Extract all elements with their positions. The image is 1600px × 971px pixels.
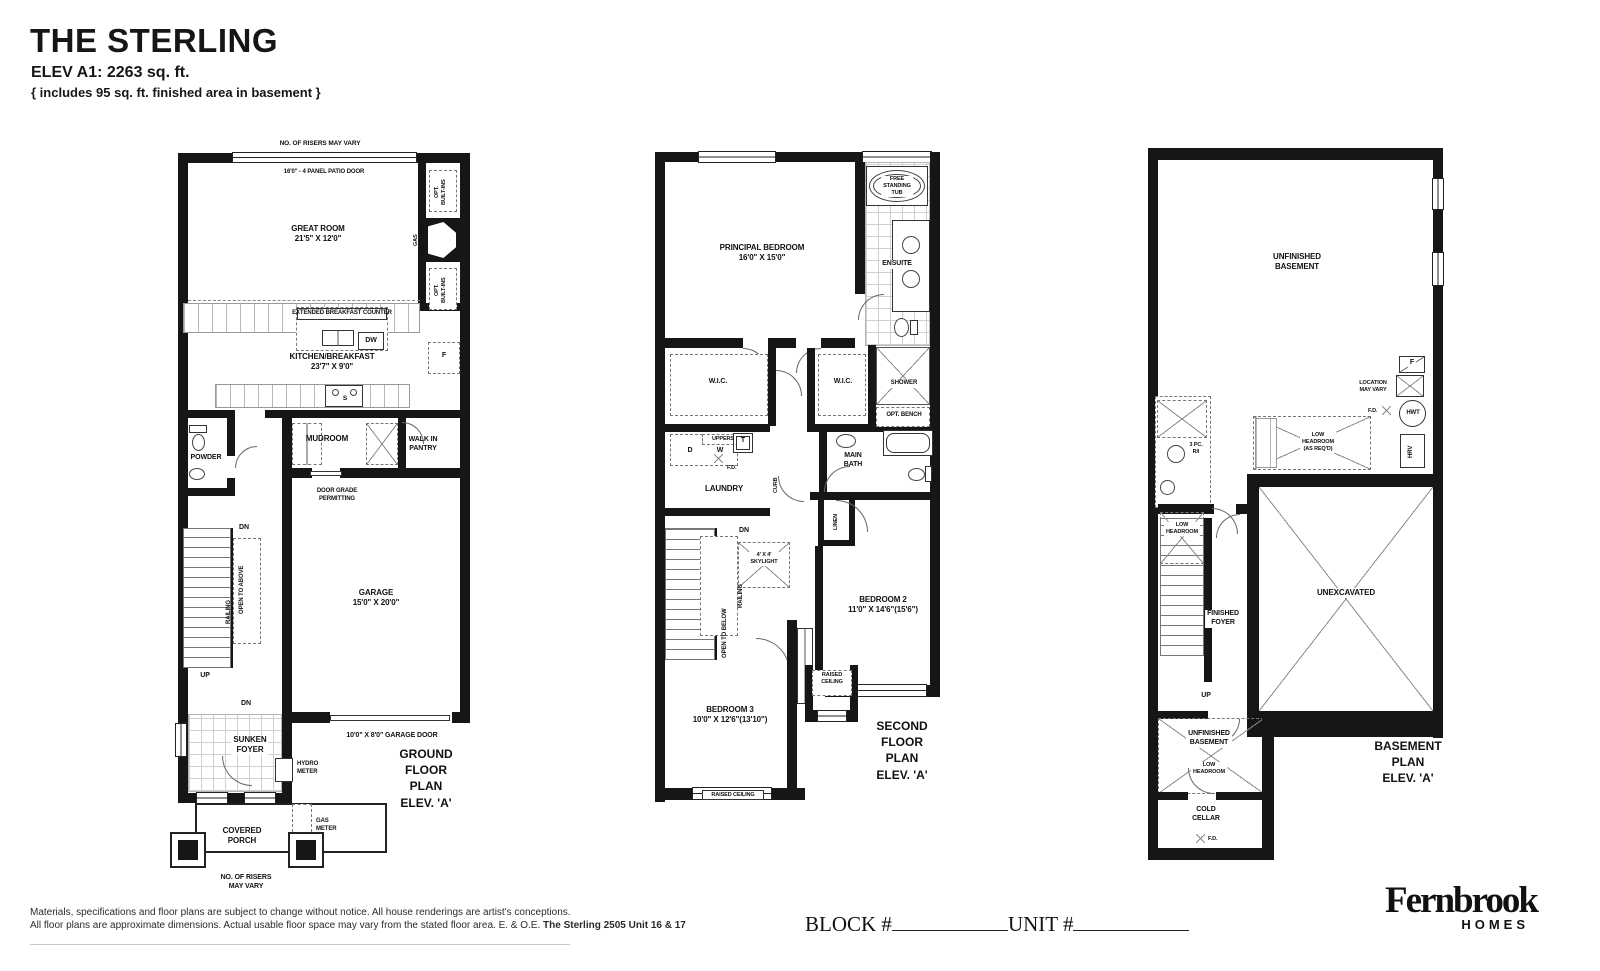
sink-bowl bbox=[902, 270, 920, 288]
room-divider-dashed bbox=[188, 300, 420, 301]
floor-drain bbox=[1382, 406, 1391, 415]
low-headroom-label: LOW HEADROOM bbox=[1164, 522, 1200, 536]
second-floor-plan: PRINCIPAL BEDROOM 16'0" X 15'0" FREE STA… bbox=[640, 140, 970, 815]
powder-room-label: POWDER bbox=[191, 454, 222, 463]
ensuite-label: ENSUITE bbox=[880, 260, 914, 269]
dn-label: DN bbox=[739, 527, 749, 536]
disclaimer-line1: Materials, specifications and floor plan… bbox=[30, 906, 686, 919]
porch-post-core bbox=[296, 840, 316, 860]
kitchen-counter bbox=[215, 384, 410, 408]
floor-drain-label: F.D. bbox=[1368, 408, 1377, 415]
bedroom3-label: BEDROOM 3 10'0" X 12'6"(13'10") bbox=[691, 705, 770, 725]
sunken-foyer-label: SUNKEN FOYER bbox=[231, 735, 268, 755]
wall bbox=[1262, 718, 1274, 860]
garage-door-label: 10'0" X 8'0" GARAGE DOOR bbox=[346, 732, 437, 741]
patio-door-window bbox=[232, 152, 417, 163]
wall bbox=[290, 468, 312, 478]
patio-door-label: 16'0" - 4 PANEL PATIO DOOR bbox=[284, 169, 365, 177]
door-arc bbox=[776, 370, 802, 396]
wall bbox=[178, 410, 235, 418]
wall bbox=[665, 508, 770, 516]
opt-bench-label: OPT. BENCH bbox=[884, 412, 923, 420]
wall bbox=[417, 153, 470, 163]
block-number-blank bbox=[892, 915, 1008, 931]
floor-drain bbox=[1196, 834, 1205, 843]
principal-bedroom-label: PRINCIPAL BEDROOM 16'0" X 15'0" bbox=[718, 243, 807, 263]
sink-bowl bbox=[836, 434, 856, 448]
wall bbox=[855, 162, 865, 294]
sink-bowl bbox=[350, 389, 357, 396]
wall bbox=[227, 418, 235, 456]
door-arc bbox=[756, 638, 790, 672]
wall bbox=[178, 488, 235, 496]
wall bbox=[1148, 848, 1274, 860]
shower-roughin bbox=[1157, 400, 1207, 438]
sink-bowl bbox=[332, 389, 339, 396]
unexcavated-label: UNEXCAVATED bbox=[1315, 588, 1377, 598]
dn-label: DN bbox=[241, 700, 251, 709]
sink-bowl bbox=[189, 468, 205, 480]
wall bbox=[1148, 148, 1443, 160]
wall bbox=[665, 424, 770, 432]
door-arc bbox=[824, 466, 850, 492]
low-headroom-label: LOW HEADROOM bbox=[1191, 762, 1227, 776]
wall bbox=[282, 418, 292, 712]
up-label: UP bbox=[200, 672, 210, 681]
garage-door bbox=[330, 715, 450, 721]
toilet-bowl bbox=[894, 318, 909, 337]
wall bbox=[807, 348, 815, 426]
cooktop bbox=[322, 330, 354, 346]
divider bbox=[30, 944, 570, 945]
second-plan-title: SECOND FLOOR PLAN ELEV. 'A' bbox=[868, 718, 936, 783]
raised-ceiling-label: RAISED CEILING bbox=[711, 792, 754, 799]
ground-plan-title: GROUND FLOOR PLAN ELEV. 'A' bbox=[394, 746, 458, 811]
wall bbox=[655, 152, 665, 802]
furnace-label: F bbox=[1408, 359, 1416, 368]
wall bbox=[847, 710, 858, 722]
door-arc bbox=[836, 500, 868, 532]
floor-drain-label: F.D. bbox=[727, 465, 736, 472]
wic-label: W.I.C. bbox=[832, 378, 854, 387]
opt-builtins-label: OPT. BUILT-INS bbox=[434, 272, 448, 308]
basement-plan: UNFINISHED BASEMENT F LOCATION MAY VARY … bbox=[1120, 140, 1460, 870]
uppers-label: UPPERS bbox=[712, 436, 734, 443]
door-arc bbox=[858, 294, 884, 320]
toilet-bowl bbox=[192, 434, 205, 451]
wall bbox=[818, 498, 824, 546]
floor-drain-label: F.D. bbox=[1208, 836, 1217, 843]
linen-label: LINEN bbox=[833, 506, 840, 538]
unfinished-basement-label: UNFINISHED BASEMENT bbox=[1186, 730, 1232, 748]
model-unit-ref: The Sterling 2505 Unit 16 & 17 bbox=[543, 920, 686, 931]
wall bbox=[178, 153, 188, 803]
wall bbox=[818, 540, 855, 546]
disclaimer-line2: All floor plans are approximate dimensio… bbox=[30, 919, 686, 932]
wic-label: W.I.C. bbox=[707, 378, 729, 387]
hydro-meter bbox=[275, 758, 293, 782]
mudroom-label: MUDROOM bbox=[306, 434, 348, 444]
wall bbox=[768, 338, 796, 348]
hydro-meter-label: HYDRO METER bbox=[297, 761, 318, 776]
risers-note-top: NO. OF RISERS MAY VARY bbox=[280, 140, 361, 148]
finished-foyer-label: FINISHED FOYER bbox=[1205, 610, 1241, 628]
door-arc bbox=[778, 476, 804, 502]
wall bbox=[340, 468, 460, 478]
fernbrook-logo: Fernbrook HOMES bbox=[1385, 882, 1535, 932]
laundry-tub-label: T bbox=[741, 437, 745, 446]
open-to-above-label: OPEN TO ABOVE bbox=[239, 560, 247, 620]
low-headroom-stair bbox=[1160, 512, 1204, 564]
wall bbox=[1216, 792, 1262, 800]
wall bbox=[292, 712, 330, 723]
toilet-roughin bbox=[1167, 445, 1185, 463]
pantry-label: WALK IN PANTRY bbox=[409, 436, 438, 454]
door-arc bbox=[1212, 508, 1238, 534]
risers-note-bottom: NO. OF RISERS MAY VARY bbox=[221, 874, 272, 892]
dishwasher-label: DW bbox=[365, 337, 376, 346]
location-may-vary-label: LOCATION MAY VARY bbox=[1359, 380, 1387, 394]
door-arc bbox=[235, 446, 257, 468]
great-room-label: GREAT ROOM 21'5" X 12'0" bbox=[291, 224, 345, 244]
low-headroom-label: LOW HEADROOM (AS REQ'D) bbox=[1300, 432, 1336, 453]
laundry-label: LAUNDRY bbox=[705, 484, 743, 494]
railing-label: RAILING bbox=[738, 576, 746, 616]
dryer-label: D bbox=[688, 447, 693, 456]
block-number-label: BLOCK # bbox=[805, 912, 892, 936]
toilet-tank bbox=[925, 466, 932, 482]
window bbox=[1432, 252, 1444, 286]
disclaimer-line2-text: All floor plans are approximate dimensio… bbox=[30, 920, 543, 931]
wall bbox=[265, 410, 460, 418]
bathtub-inner bbox=[886, 433, 930, 453]
window bbox=[698, 151, 776, 163]
ground-floor-plan: NO. OF RISERS MAY VARY 16'0" - 4 PANEL P… bbox=[170, 140, 490, 900]
porch-post-core bbox=[178, 840, 198, 860]
curb-label: CURB bbox=[773, 472, 780, 498]
unexcavated-area bbox=[1259, 487, 1433, 711]
fridge-label: F bbox=[442, 352, 446, 361]
mudroom-locker bbox=[292, 423, 322, 465]
wall bbox=[821, 338, 855, 348]
logo-wordmark: Fernbrook bbox=[1385, 882, 1535, 919]
wall bbox=[452, 712, 460, 723]
kitchen-label: KITCHEN/BREAKFAST 23'7" X 9'0" bbox=[290, 352, 375, 372]
open-to-above-outline bbox=[233, 538, 261, 644]
gas-meter-label: GAS METER bbox=[316, 818, 337, 833]
cold-cellar-label: COLD CELLAR bbox=[1190, 806, 1222, 824]
block-unit-line: BLOCK #UNIT # bbox=[805, 912, 1189, 937]
window bbox=[855, 684, 927, 697]
skylight-label: 4' X 4' SKYLIGHT bbox=[748, 552, 779, 566]
raised-ceiling-label: RAISED CEILING bbox=[821, 672, 843, 686]
wall bbox=[1158, 792, 1188, 800]
washer-label: W bbox=[717, 447, 724, 456]
window bbox=[1432, 178, 1444, 210]
wall bbox=[1433, 148, 1443, 738]
covered-porch-label: COVERED PORCH bbox=[221, 826, 264, 846]
toilet-tank bbox=[189, 425, 207, 433]
basement-plan-title: BASEMENT PLAN ELEV. 'A' bbox=[1374, 738, 1441, 787]
wall bbox=[1204, 518, 1212, 682]
bedroom2-label: BEDROOM 2 11'0" X 14'6"(15'6") bbox=[846, 595, 920, 615]
threepc-roughin-label: 3 PC. R/I bbox=[1187, 442, 1204, 456]
unfinished-basement-label: UNFINISHED BASEMENT bbox=[1273, 252, 1321, 272]
hwt-label: HWT bbox=[1406, 410, 1419, 418]
wall bbox=[810, 492, 940, 500]
railing-label: RAILING bbox=[226, 592, 234, 632]
wall bbox=[787, 620, 797, 790]
window bbox=[817, 710, 847, 722]
wall bbox=[1247, 474, 1443, 487]
up-label: UP bbox=[1201, 692, 1211, 701]
wall bbox=[1247, 711, 1443, 737]
dn-label: DN bbox=[239, 524, 249, 533]
shower bbox=[876, 347, 930, 405]
opt-builtins-label: OPT. BUILT-INS bbox=[434, 174, 448, 210]
floorplan-sheet: { "header": { "title": "THE STERLING", "… bbox=[0, 0, 1600, 971]
wall bbox=[460, 163, 470, 723]
basement-area-note: { includes 95 sq. ft. finished area in b… bbox=[31, 85, 321, 100]
open-to-below-label: OPEN TO BELOW bbox=[722, 598, 730, 668]
wall bbox=[665, 338, 743, 348]
door-grade-note: DOOR GRADE PERMITTING bbox=[317, 488, 357, 503]
toilet-bowl bbox=[908, 468, 925, 481]
stairs bbox=[183, 528, 231, 668]
furnace-unit bbox=[1396, 375, 1424, 397]
wall bbox=[1247, 474, 1259, 737]
elevation-area: ELEV A1: 2263 sq. ft. bbox=[31, 64, 190, 82]
wall bbox=[768, 348, 776, 426]
unit-number-label: UNIT # bbox=[1008, 912, 1074, 936]
main-bath-label: MAIN BATH bbox=[844, 452, 863, 470]
stair-rail-outline bbox=[700, 536, 738, 636]
sink-label: S bbox=[343, 395, 347, 403]
extended-counter-label: EXTENDED BREAKFAST COUNTER bbox=[292, 310, 392, 318]
mudroom-closet bbox=[366, 423, 398, 465]
tub-label: FREE STANDING TUB bbox=[881, 176, 913, 197]
page-title: THE STERLING bbox=[30, 22, 278, 60]
shower-label: SHOWER bbox=[889, 380, 919, 388]
ductwork bbox=[1255, 418, 1277, 468]
door-to-garage bbox=[310, 471, 342, 476]
hrv-label: HRV bbox=[1408, 442, 1416, 462]
unit-number-blank bbox=[1073, 915, 1189, 931]
sink-bowl bbox=[902, 236, 920, 254]
sink-roughin bbox=[1160, 480, 1175, 495]
gas-fireplace-label: GAS FIREPLACE bbox=[413, 220, 427, 260]
garage-label: GARAGE 15'0" X 20'0" bbox=[353, 588, 400, 608]
wall bbox=[868, 345, 876, 432]
toilet-tank bbox=[910, 320, 918, 335]
window bbox=[175, 723, 187, 757]
wall bbox=[805, 710, 817, 722]
disclaimer: Materials, specifications and floor plan… bbox=[30, 906, 686, 932]
